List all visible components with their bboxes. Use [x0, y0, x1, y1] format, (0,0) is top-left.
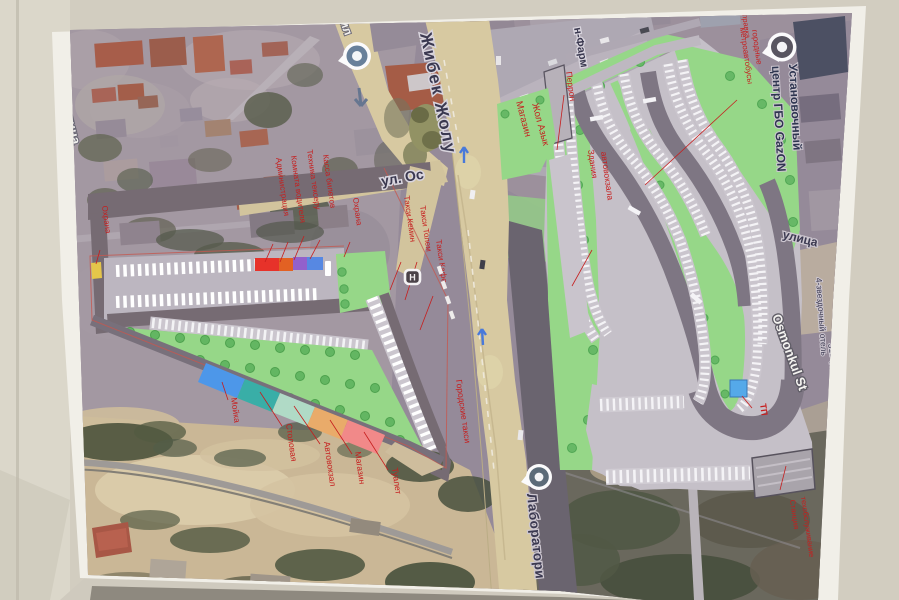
svg-text:ТП: ТП — [758, 403, 770, 416]
svg-text:H: H — [409, 273, 416, 283]
